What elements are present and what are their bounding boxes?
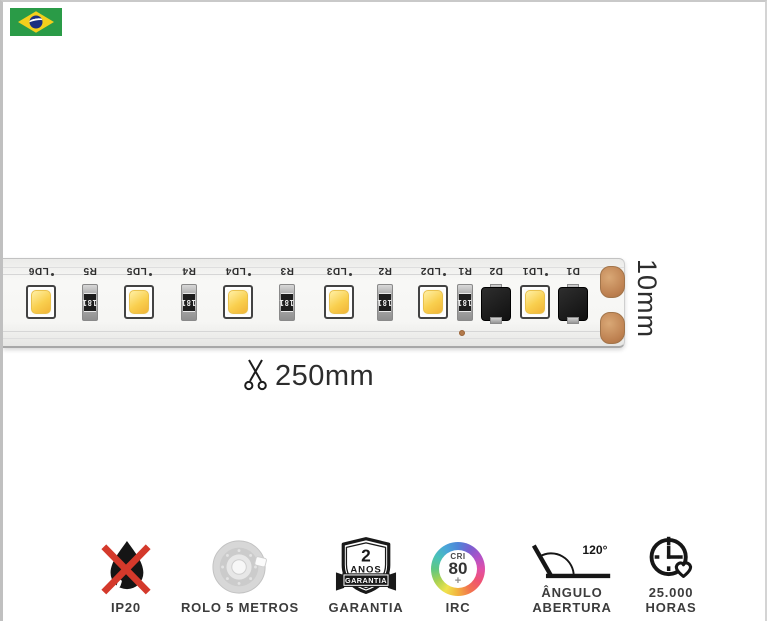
diode-package — [558, 284, 588, 324]
pcb-dot — [545, 273, 548, 276]
led-component: LD5 — [117, 259, 161, 319]
resistor-face: 181 — [183, 293, 195, 312]
diode-lead — [567, 317, 579, 324]
flag-globe — [30, 16, 43, 29]
resistor-component: R5 181 — [68, 259, 112, 321]
led-component: LD6 — [19, 259, 63, 319]
feature-label: 25.000 HORAS — [646, 586, 697, 616]
component-label-text: LD2 — [420, 266, 440, 277]
component-label-text: LD3 — [326, 266, 346, 277]
diode-package — [481, 284, 511, 324]
diode-body — [481, 287, 511, 321]
solder-pad — [600, 266, 625, 298]
led-strip-image: LD6 R5 181 LD5 R4 181 LD4 R3 181 LD — [3, 258, 625, 348]
resistor-face: 181 — [84, 293, 96, 312]
lifespan-label-line1: 25.000 — [649, 585, 694, 600]
led-strip-roll-icon — [211, 538, 269, 596]
component-label: D1 — [551, 265, 595, 277]
led-package — [26, 285, 56, 319]
resistor-face: 181 — [459, 293, 471, 312]
component-label-text: R5 — [83, 266, 97, 277]
led-chip — [228, 290, 248, 314]
scissors-icon — [243, 359, 268, 393]
component-label: R2 — [363, 265, 407, 277]
component-label-text: LD5 — [126, 266, 146, 277]
led-package — [520, 285, 550, 319]
cut-length-label: 250mm — [275, 360, 374, 393]
clock-heart-icon — [641, 536, 701, 581]
resistor-value: 181 — [457, 298, 472, 307]
component-label: LD5 — [117, 265, 161, 277]
resistor-value: 181 — [82, 298, 97, 307]
led-chip — [129, 290, 149, 314]
brazil-flag-icon — [10, 8, 62, 36]
component-label-text: R2 — [378, 266, 392, 277]
component-label-text: LD6 — [28, 266, 48, 277]
feature-label: ÂNGULO ABERTURA — [532, 586, 611, 616]
flag-band — [30, 17, 43, 28]
component-label-text: D1 — [566, 266, 580, 277]
diode-component: D2 — [474, 259, 518, 324]
pcb-dot — [248, 273, 251, 276]
component-label: LD6 — [19, 265, 63, 277]
component-label: LD4 — [216, 265, 260, 277]
diode-component: D1 — [551, 259, 595, 324]
solder-pad — [600, 312, 625, 344]
led-chip — [423, 290, 443, 314]
resistor-component: R4 181 — [167, 259, 211, 321]
led-chip — [525, 290, 545, 314]
resistor-component: R3 181 — [265, 259, 309, 321]
angle-label-line2: ABERTURA — [532, 600, 611, 615]
resistor-package: 181 — [181, 284, 197, 321]
feature-roll: ROLO 5 METROS — [165, 536, 315, 616]
svg-text:2: 2 — [361, 545, 371, 565]
feature-label: IP20 — [111, 601, 141, 616]
feature-beam-angle: 120° ÂNGULO ABERTURA — [512, 536, 632, 616]
resistor-face: 181 — [281, 293, 293, 312]
feature-warranty: 2 ANOS GARANTIA GARANTIA — [311, 536, 421, 616]
resistor-value: 181 — [181, 298, 196, 307]
diode-lead — [490, 317, 502, 324]
beam-angle-icon: 120° — [526, 536, 618, 581]
cri-color-ring-icon: CRI 80 + — [431, 542, 485, 596]
feature-label: GARANTIA — [328, 601, 403, 616]
no-water-drop-icon — [99, 538, 153, 596]
pcb-dot — [51, 273, 54, 276]
led-chip — [31, 290, 51, 314]
resistor-package: 181 — [377, 284, 393, 321]
led-component: LD3 — [317, 259, 361, 319]
resistor-package: 181 — [82, 284, 98, 321]
component-label-text: D2 — [489, 266, 503, 277]
component-label: R4 — [167, 265, 211, 277]
component-label: R3 — [265, 265, 309, 277]
pcb-via — [459, 330, 465, 336]
angle-label-line1: ÂNGULO — [541, 585, 602, 600]
strip-trace-line — [3, 331, 624, 332]
resistor-package: 181 — [457, 284, 473, 321]
strip-width-dimension: 10mm — [631, 259, 662, 349]
warranty-shield-icon: 2 ANOS GARANTIA — [332, 536, 400, 596]
feature-ip20: IP20 — [81, 536, 171, 616]
feature-lifespan: 25.000 HORAS — [621, 536, 721, 616]
component-label-text: LD1 — [522, 266, 542, 277]
component-label-text: LD4 — [225, 266, 245, 277]
cri-ring-center: CRI 80 + — [439, 550, 477, 588]
resistor-component: R2 181 — [363, 259, 407, 321]
beam-angle-value: 120° — [582, 543, 607, 557]
feature-label: IRC — [446, 601, 471, 616]
resistor-value: 181 — [377, 298, 392, 307]
led-package — [223, 285, 253, 319]
led-package — [124, 285, 154, 319]
svg-text:GARANTIA: GARANTIA — [345, 576, 387, 585]
component-label-text: R1 — [458, 266, 472, 277]
feature-cri: CRI 80 + IRC — [418, 536, 498, 616]
led-component: LD4 — [216, 259, 260, 319]
feature-label: ROLO 5 METROS — [181, 601, 299, 616]
resistor-face: 181 — [379, 293, 391, 312]
component-label: D2 — [474, 265, 518, 277]
cut-length-annotation: 250mm — [243, 359, 374, 393]
pcb-dot — [349, 273, 352, 276]
strip-trace-line — [3, 338, 624, 339]
resistor-value: 181 — [279, 298, 294, 307]
pcb-dot — [149, 273, 152, 276]
component-label: R5 — [68, 265, 112, 277]
diode-body — [558, 287, 588, 321]
component-label-text: R4 — [182, 266, 196, 277]
lifespan-label-line2: HORAS — [646, 600, 697, 615]
resistor-package: 181 — [279, 284, 295, 321]
led-package — [324, 285, 354, 319]
component-label: LD3 — [317, 265, 361, 277]
component-label-text: R3 — [280, 266, 294, 277]
led-chip — [329, 290, 349, 314]
product-sheet: LD6 R5 181 LD5 R4 181 LD4 R3 181 LD — [0, 0, 767, 621]
cri-plus: + — [455, 577, 461, 586]
